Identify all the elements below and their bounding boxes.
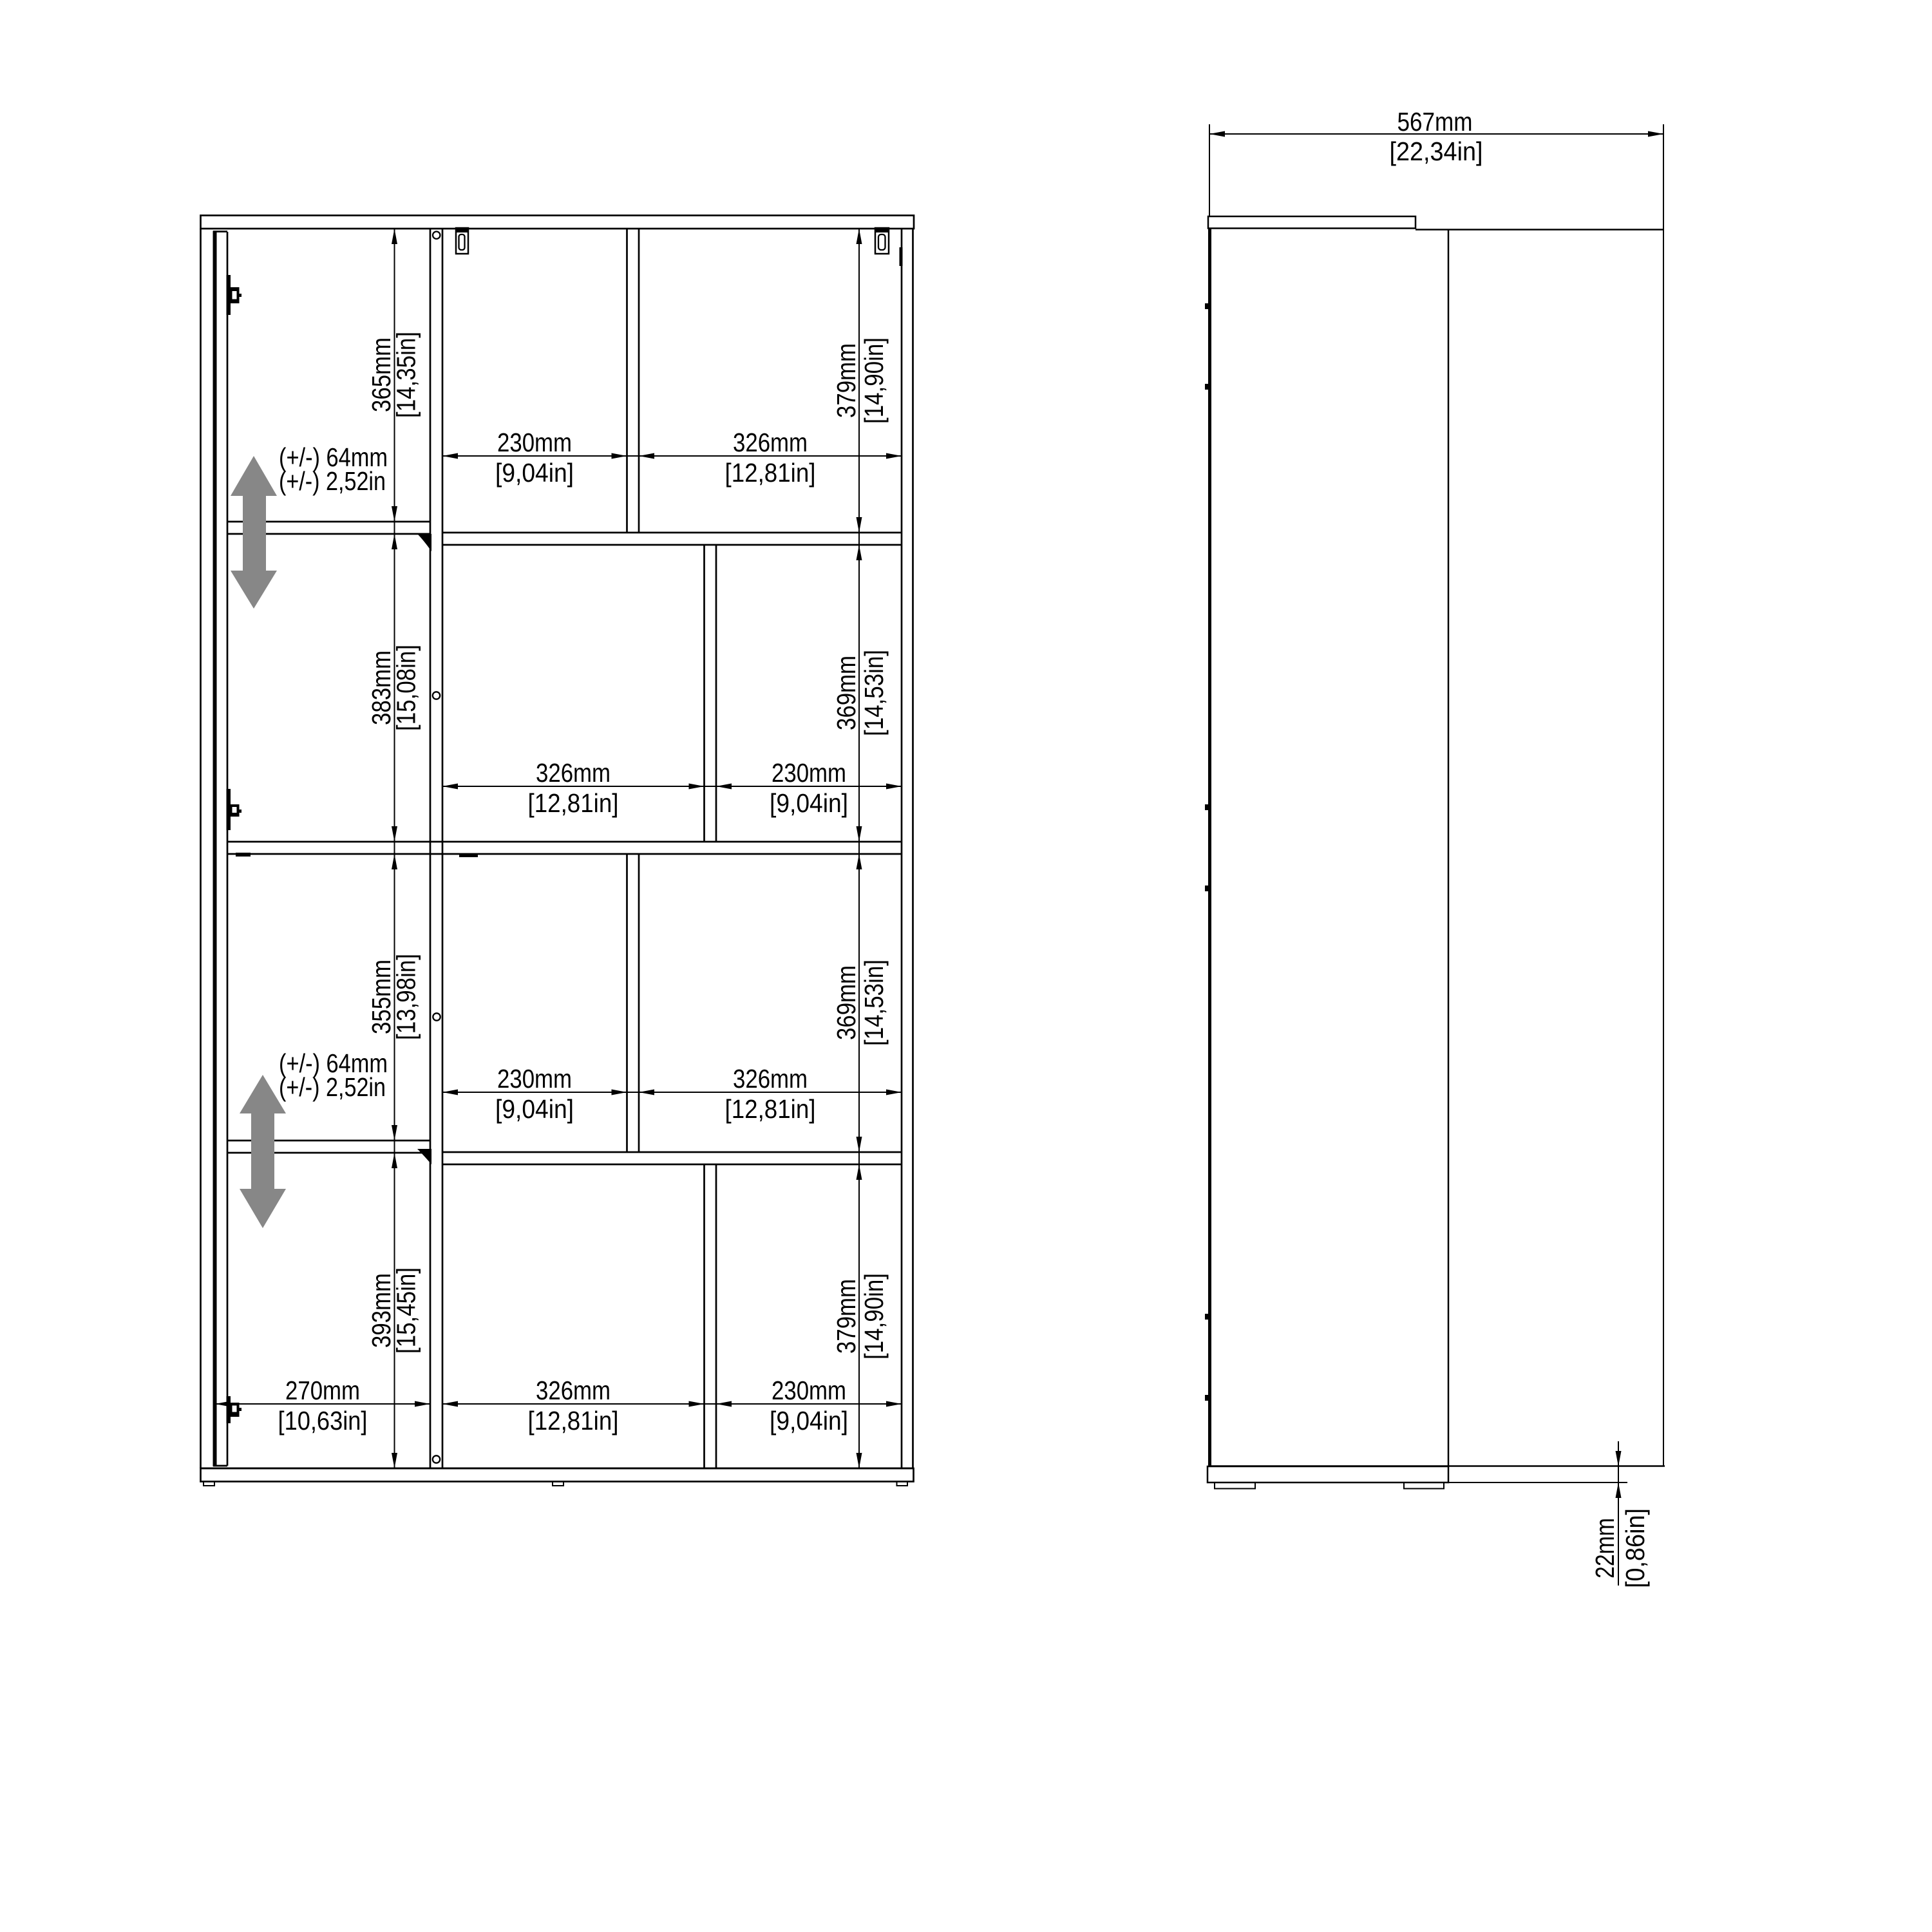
svg-text:[9,04in]: [9,04in] [495,458,574,488]
svg-text:(+/-) 2,52in: (+/-) 2,52in [279,466,386,496]
svg-text:230mm: 230mm [497,1064,572,1094]
svg-text:230mm: 230mm [772,758,846,788]
svg-text:[10,63in]: [10,63in] [278,1406,368,1435]
svg-text:[9,04in]: [9,04in] [770,788,848,818]
svg-text:(+/-) 2,52in: (+/-) 2,52in [279,1072,386,1102]
svg-text:[0,86in]: [0,86in] [1620,1508,1650,1588]
svg-text:[15,08in]: [15,08in] [392,645,421,731]
svg-text:230mm: 230mm [497,428,572,457]
svg-text:[14,90in]: [14,90in] [859,337,889,424]
svg-text:369mm: 369mm [831,656,861,730]
svg-text:[12,81in]: [12,81in] [528,1406,619,1435]
svg-text:[14,53in]: [14,53in] [859,960,889,1046]
svg-text:[14,53in]: [14,53in] [859,650,889,736]
svg-text:[14,35in]: [14,35in] [392,332,421,418]
svg-text:379mm: 379mm [831,1279,861,1354]
svg-text:326mm: 326mm [536,1376,611,1405]
svg-text:22mm: 22mm [1590,1518,1620,1578]
svg-text:[12,81in]: [12,81in] [725,458,816,488]
svg-text:230mm: 230mm [772,1376,846,1405]
svg-text:[9,04in]: [9,04in] [770,1406,848,1435]
svg-text:270mm: 270mm [285,1376,360,1405]
svg-text:326mm: 326mm [733,428,808,457]
svg-text:369mm: 369mm [831,965,861,1040]
svg-text:[12,81in]: [12,81in] [725,1094,816,1124]
svg-text:326mm: 326mm [536,758,611,788]
svg-text:[15,45in]: [15,45in] [392,1267,421,1354]
svg-text:326mm: 326mm [733,1064,808,1094]
svg-text:[22,34in]: [22,34in] [1390,137,1483,166]
svg-text:[14,90in]: [14,90in] [859,1273,889,1359]
svg-text:[12,81in]: [12,81in] [528,788,619,818]
svg-text:379mm: 379mm [831,343,861,418]
svg-text:[9,04in]: [9,04in] [495,1094,574,1124]
svg-text:567mm: 567mm [1397,107,1473,137]
svg-text:[13,98in]: [13,98in] [392,954,421,1040]
